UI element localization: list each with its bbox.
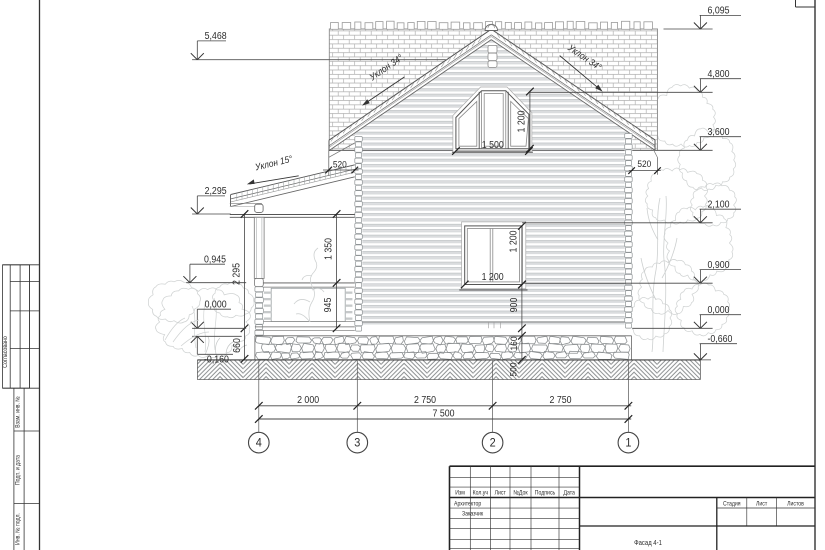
svg-text:945: 945 bbox=[321, 298, 333, 313]
svg-text:160: 160 bbox=[508, 337, 519, 351]
svg-text:Листов: Листов bbox=[787, 501, 804, 508]
svg-text:Стадия: Стадия bbox=[723, 501, 741, 508]
svg-text:1 200: 1 200 bbox=[515, 111, 527, 133]
svg-text:0,945: 0,945 bbox=[204, 253, 226, 265]
svg-text:1 350: 1 350 bbox=[322, 238, 334, 260]
svg-text:660: 660 bbox=[230, 338, 242, 353]
svg-text:3: 3 bbox=[354, 437, 360, 449]
svg-text:4,800: 4,800 bbox=[708, 67, 730, 79]
svg-text:7 500: 7 500 bbox=[433, 407, 455, 419]
svg-text:2: 2 bbox=[490, 437, 496, 449]
svg-text:Кол.уч: Кол.уч bbox=[473, 490, 488, 497]
svg-text:1 200: 1 200 bbox=[507, 231, 519, 253]
svg-text:6,095: 6,095 bbox=[708, 4, 730, 16]
svg-text:2,295: 2,295 bbox=[205, 185, 227, 197]
svg-text:0,000: 0,000 bbox=[205, 298, 227, 310]
svg-text:2 750: 2 750 bbox=[550, 394, 572, 406]
svg-text:Лист: Лист bbox=[495, 490, 507, 497]
svg-text:520: 520 bbox=[637, 158, 651, 169]
svg-text:Заказчик: Заказчик bbox=[462, 511, 484, 518]
svg-text:-0,660: -0,660 bbox=[708, 332, 733, 344]
svg-text:Подп. и дата: Подп. и дата bbox=[15, 454, 21, 485]
svg-text:1 500: 1 500 bbox=[482, 138, 504, 150]
svg-text:0,900: 0,900 bbox=[708, 258, 730, 270]
svg-text:Дата: Дата bbox=[563, 490, 575, 497]
svg-text:1: 1 bbox=[625, 437, 631, 449]
svg-text:1 200: 1 200 bbox=[482, 270, 504, 282]
svg-text:Согласовано: Согласовано bbox=[2, 336, 8, 368]
svg-text:Архитектор: Архитектор bbox=[454, 501, 481, 508]
svg-text:-0,160: -0,160 bbox=[204, 353, 229, 365]
svg-text:2,100: 2,100 bbox=[708, 198, 730, 210]
svg-text:4: 4 bbox=[256, 437, 262, 449]
svg-text:2 295: 2 295 bbox=[230, 263, 242, 285]
svg-text:520: 520 bbox=[333, 159, 347, 170]
svg-text:Изм: Изм bbox=[455, 490, 465, 497]
svg-text:№Док: №Док bbox=[513, 490, 528, 497]
svg-text:2 000: 2 000 bbox=[297, 394, 319, 406]
svg-text:Лист: Лист bbox=[756, 501, 768, 508]
svg-text:Инв. № подл.: Инв. № подл. bbox=[15, 513, 21, 545]
svg-text:900: 900 bbox=[508, 298, 520, 313]
svg-text:500: 500 bbox=[508, 363, 519, 377]
svg-text:2 750: 2 750 bbox=[414, 394, 436, 406]
svg-text:Подпись: Подпись bbox=[535, 490, 555, 497]
svg-text:Фасад 4-1: Фасад 4-1 bbox=[634, 540, 662, 548]
svg-text:0,000: 0,000 bbox=[708, 303, 730, 315]
svg-text:3,600: 3,600 bbox=[708, 125, 730, 137]
svg-text:5,468: 5,468 bbox=[205, 30, 227, 42]
svg-text:Взам. инв. №: Взам. инв. № bbox=[15, 396, 21, 428]
